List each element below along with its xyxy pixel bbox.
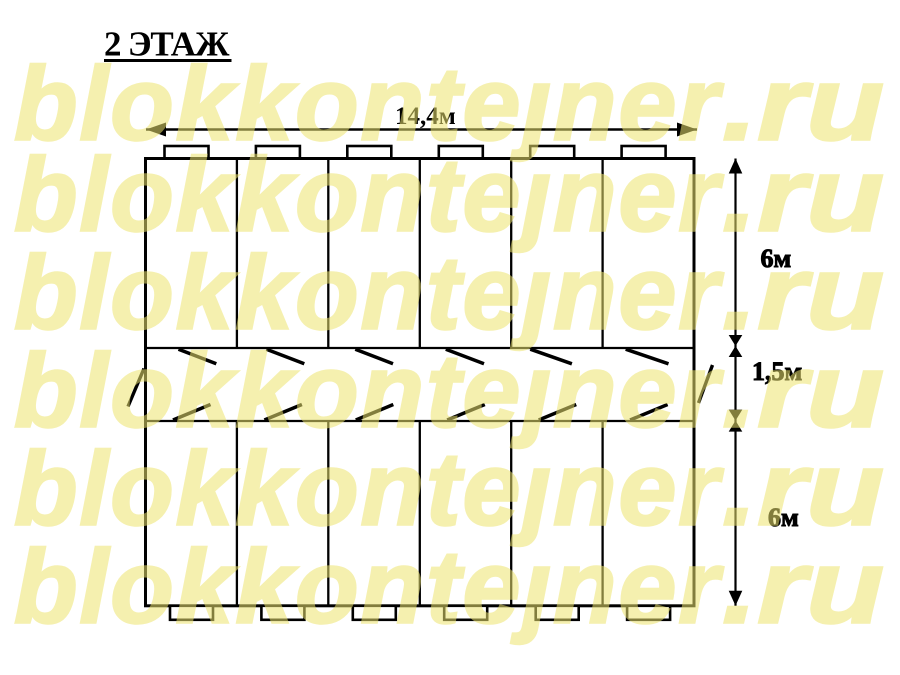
svg-text:blokkonteȷner: blokkonteȷner: [14, 529, 724, 645]
svg-text:.ru: .ru: [722, 529, 884, 645]
